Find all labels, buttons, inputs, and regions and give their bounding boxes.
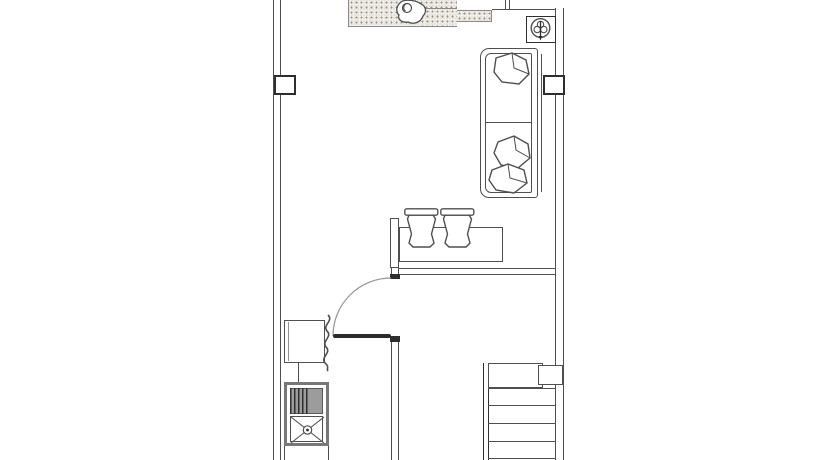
counter-hatch-right [457,10,492,22]
bar-stool [404,208,439,248]
under-sink-cabinet-left-line [284,446,285,460]
bar-counter-end-panel [390,218,399,268]
washer-box-inner-line [288,322,289,361]
stair-tread [488,423,555,424]
door-leaf [333,334,391,338]
partition-wall-vertical-lower [391,342,399,460]
sofa-pillow [494,136,530,168]
stair-tread [488,441,555,442]
left-wall-pier [274,75,296,95]
stair-landing-notch [538,365,563,385]
sofa-back-line [541,54,542,192]
stair-tread [488,405,555,406]
left-wall-inner-line [280,0,281,460]
floor-plan [0,0,840,460]
sink-basin [290,416,323,442]
sofa-pillows [486,50,536,200]
stair-landing [488,363,543,388]
sofa-pillow [494,53,529,84]
under-sink-cabinet-right-line [328,446,329,460]
top-wall-line [492,9,556,10]
top-wall-stub [505,0,510,10]
sink-drainboard-stripes [290,388,309,414]
hose-squiggle [321,314,335,372]
door-swing-arc [330,276,394,338]
partition-wall-horizontal [398,268,556,275]
bar-stool [440,208,475,248]
plant-icon [527,17,554,41]
left-wall-outer-line [273,0,274,460]
sofa-pillow [489,164,527,193]
stair-tread [488,458,555,459]
washer-box [284,320,325,363]
drain-cross-icon [291,417,324,443]
right-wall-pier [543,75,565,95]
counter-decor-blob [394,0,430,26]
stair-tread [488,388,555,389]
washer-sink-connector-line [298,363,299,382]
planter-box [526,16,556,43]
